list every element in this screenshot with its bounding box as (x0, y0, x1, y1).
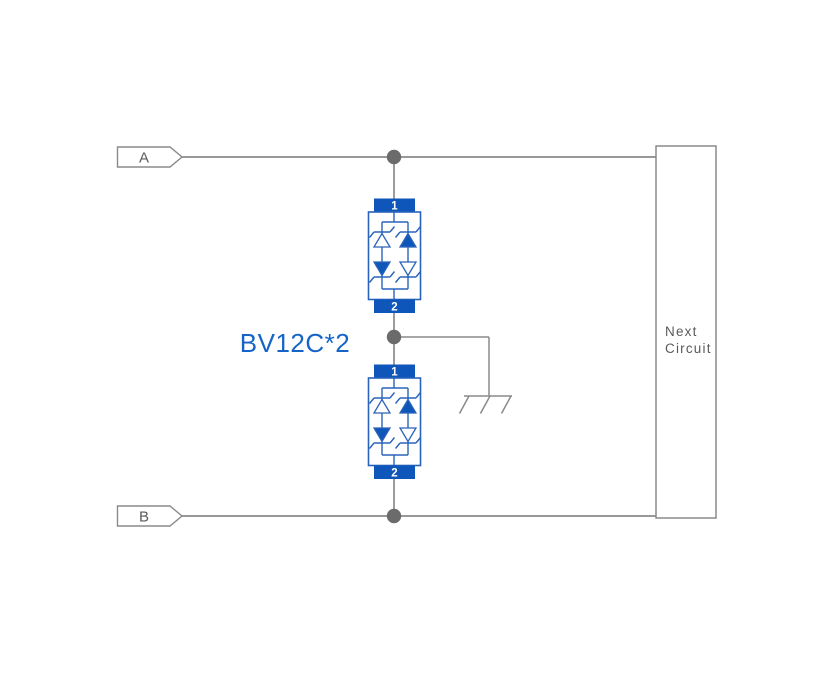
pin2-label: 2 (391, 468, 397, 480)
chassis-ground-icon (460, 396, 513, 414)
junction-dot-bottom (387, 509, 401, 523)
junction-dot-top (387, 150, 401, 164)
circuit-diagram: A B Next Circuit BV12C*2 (0, 0, 832, 675)
circuit-diagram-canvas: A B Next Circuit BV12C*2 (0, 0, 832, 675)
tvs-diode-array-2: 1 2 (369, 365, 421, 480)
terminal-a-label: A (139, 150, 149, 167)
pin2-label: 2 (391, 302, 397, 314)
terminal-b-label: B (139, 509, 149, 526)
terminal-b-tag: B (118, 506, 183, 526)
next-circuit-label-line1: Next (665, 324, 698, 339)
component-body (369, 378, 421, 466)
next-circuit-label-line2: Circuit (665, 341, 712, 356)
terminal-b-shape (118, 506, 183, 526)
pin1-label: 1 (391, 201, 398, 213)
terminal-a-tag: A (118, 147, 183, 167)
next-circuit-box: Next Circuit (656, 146, 716, 518)
component-part-number-label: BV12C*2 (240, 328, 350, 358)
component-body (369, 212, 421, 300)
junction-dot-middle (387, 330, 401, 344)
pin1-label: 1 (391, 367, 398, 379)
terminal-a-shape (118, 147, 183, 167)
tvs-diode-array-1: 1 2 (369, 199, 421, 314)
